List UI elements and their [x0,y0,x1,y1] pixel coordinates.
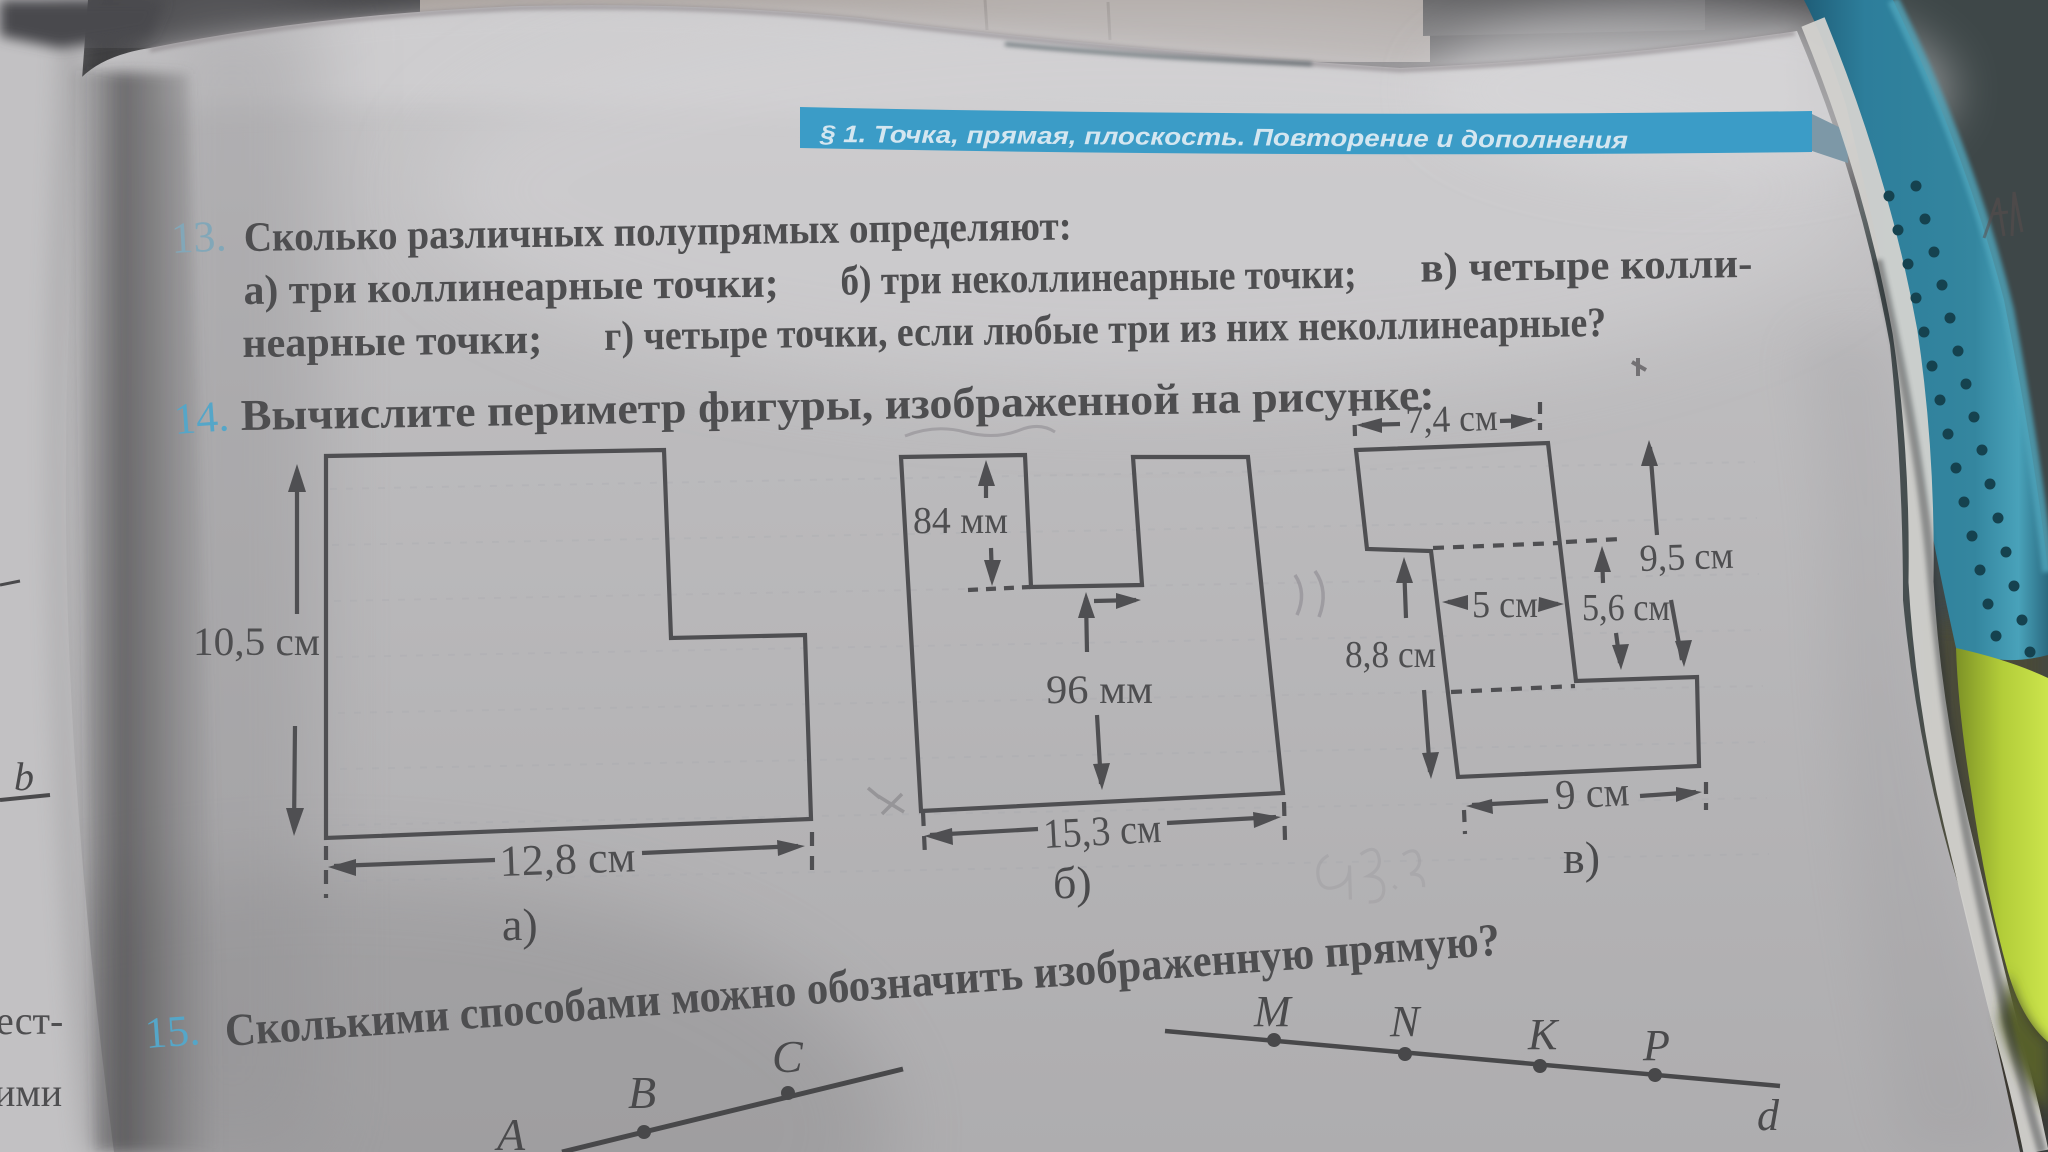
svg-text:8,8 см: 8,8 см [1345,634,1436,676]
svg-text:9,5 см: 9,5 см [1639,535,1734,580]
svg-text:d: d [1757,1091,1780,1140]
svg-text:M: M [1253,987,1293,1036]
svg-text:84 мм: 84 мм [913,500,1008,542]
svg-text:5 см: 5 см [1472,584,1538,626]
svg-text:а) три коллинеарные точки;: а) три коллинеарные точки; [243,261,779,314]
svg-text:а): а) [502,899,538,950]
svg-text:ими: ими [0,1070,62,1115]
svg-text:P: P [1642,1021,1670,1070]
svg-text:N: N [1389,997,1422,1046]
svg-text:б) три неколлинеарные точки;: б) три неколлинеарные точки; [840,251,1357,304]
svg-text:ест-: ест- [0,998,63,1043]
svg-text:12,8 см: 12,8 см [499,832,637,886]
svg-text:b: b [14,754,34,799]
svg-text:C: C [772,1031,804,1082]
svg-text:14.: 14. [172,391,230,444]
svg-text:5,6 см: 5,6 см [1582,587,1670,629]
svg-text:15,3 см: 15,3 см [1042,806,1162,858]
svg-text:неарные точки;: неарные точки; [242,317,543,367]
svg-text:A: A [494,1109,526,1152]
svg-text:96 мм: 96 мм [1046,667,1153,712]
svg-text:9 см: 9 см [1554,769,1630,819]
svg-text:B: B [628,1067,656,1118]
svg-text:в): в) [1563,832,1600,883]
svg-text:б): б) [1053,857,1092,908]
svg-text:в) четыре колли-: в) четыре колли- [1420,241,1753,292]
svg-text:10,5 см: 10,5 см [193,619,320,664]
svg-text:7,4 см: 7,4 см [1405,397,1498,442]
svg-text:K: K [1527,1010,1560,1059]
svg-text:13.: 13. [170,211,227,263]
svg-text:15.: 15. [143,1005,201,1058]
